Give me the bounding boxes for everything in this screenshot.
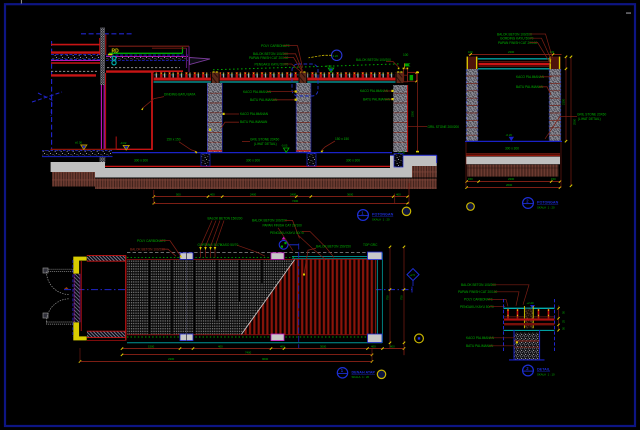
svg-text:300 x 300: 300 x 300 [134,159,148,163]
svg-text:DENAH ATAP: DENAH ATAP [352,370,376,374]
svg-text:2400: 2400 [290,192,297,196]
svg-text:+2.50: +2.50 [325,64,333,68]
svg-text:RD: RD [112,48,120,54]
svg-text:150: 150 [468,177,473,181]
svg-text:400: 400 [396,192,401,196]
svg-text:PENGAKU KAYU 50/70: PENGAKU KAYU 50/70 [255,62,289,66]
svg-text:7400: 7400 [292,199,299,203]
svg-text:-0.20: -0.20 [506,133,513,137]
svg-text:BALOK BETON 100/200: BALOK BETON 100/200 [130,247,165,251]
svg-text:50: 50 [562,310,566,314]
svg-text:TOP GRC: TOP GRC [363,243,378,247]
svg-text:+2.20: +2.20 [527,301,535,305]
svg-text:BALOK BETON 150/200: BALOK BETON 150/200 [208,217,243,221]
svg-text:1500: 1500 [148,344,155,348]
svg-text:(LIHAT DETAIL): (LIHAT DETAIL) [254,142,277,146]
svg-text:PAPAN FINISH CAT 20/100: PAPAN FINISH CAT 20/100 [249,56,288,60]
svg-text:3000: 3000 [320,344,327,348]
svg-text:KASO 50/70: KASO 50/70 [221,243,239,247]
svg-text:3600: 3600 [347,192,354,196]
svg-text:2.20: 2.20 [333,54,339,58]
svg-text:POTONGAN: POTONGAN [372,213,394,217]
svg-text:SKALA 1 : 10: SKALA 1 : 10 [537,373,555,377]
svg-text:2150: 2150 [561,98,565,105]
svg-text:PAPAN FINISH CAT 20/100: PAPAN FINISH CAT 20/100 [498,41,537,45]
svg-text:KACO PALIMANAN: KACO PALIMANAN [240,112,269,116]
svg-text:50: 50 [562,326,566,330]
svg-text:GRIL STONE 20X60: GRIL STONE 20X60 [250,138,279,142]
svg-text:2300: 2300 [411,110,415,117]
svg-text:400: 400 [371,344,376,348]
svg-text:PENGAKU KAYU 50/70: PENGAKU KAYU 50/70 [460,305,494,309]
svg-text:PAPAN FINISH CAT 20/100: PAPAN FINISH CAT 20/100 [263,224,302,228]
svg-text:300 x 300: 300 x 300 [505,147,519,151]
svg-text:±0.00: ±0.00 [75,140,82,144]
svg-text:PENGAKU KAYU 50/70: PENGAKU KAYU 50/70 [270,231,304,235]
svg-text:GRIL STONE 200/200: GRIL STONE 200/200 [428,125,460,129]
svg-text:400: 400 [218,344,223,348]
svg-text:500: 500 [176,192,181,196]
svg-text:SKALA 1 : 20: SKALA 1 : 20 [372,218,390,222]
svg-text:100: 100 [468,50,473,54]
svg-text:+2.5: +2.5 [409,273,415,277]
svg-text:150 x 150: 150 x 150 [167,138,181,142]
svg-text:GRIL STONE 20X60: GRIL STONE 20X60 [577,112,606,116]
svg-text:DINDING BATU BATA: DINDING BATU BATA [164,93,196,97]
svg-text:PAPAN FINISH CAT 20/100: PAPAN FINISH CAT 20/100 [458,290,497,294]
svg-text:BALOK BETON 100/200: BALOK BETON 100/200 [252,219,287,223]
svg-text:2500: 2500 [572,118,576,125]
svg-text:SKALA 1 : 20: SKALA 1 : 20 [537,206,555,210]
svg-text:400: 400 [210,192,215,196]
svg-text:BALOK BETON 100/200: BALOK BETON 100/200 [461,283,496,287]
svg-text:25: 25 [562,319,566,323]
svg-text:BATU PALIMANAN: BATU PALIMANAN [240,120,268,124]
svg-text:2300: 2300 [168,357,175,361]
svg-text:400: 400 [280,344,285,348]
svg-text:DETAIL: DETAIL [537,368,551,372]
svg-text:-0.02: -0.02 [120,141,127,145]
svg-text:2300: 2300 [508,177,515,181]
svg-text:SKALA 1 : 20: SKALA 1 : 20 [352,375,370,379]
svg-text:POTONGAN: POTONGAN [537,201,559,205]
svg-text:9600: 9600 [262,357,269,361]
svg-text:750: 750 [386,295,390,300]
svg-text:150: 150 [551,177,556,181]
svg-text:300 x 300: 300 x 300 [346,159,360,163]
svg-text:150 x 150: 150 x 150 [335,137,349,141]
svg-text:2600: 2600 [506,183,513,187]
svg-text:2400: 2400 [250,192,257,196]
svg-text:300 x 300: 300 x 300 [246,159,260,163]
svg-text:2300: 2300 [508,50,515,54]
svg-text:750: 750 [400,295,404,300]
svg-text:(LIHAT DETAIL): (LIHAT DETAIL) [578,117,601,121]
svg-text:BALOK BETON 100/200: BALOK BETON 100/200 [356,58,391,62]
svg-text:7400: 7400 [245,350,252,354]
svg-text:100: 100 [403,53,409,57]
svg-text:400: 400 [390,344,395,348]
svg-text:-0.05: -0.05 [281,144,288,148]
svg-text:BALOK BETON 150/150: BALOK BETON 150/150 [316,244,351,248]
